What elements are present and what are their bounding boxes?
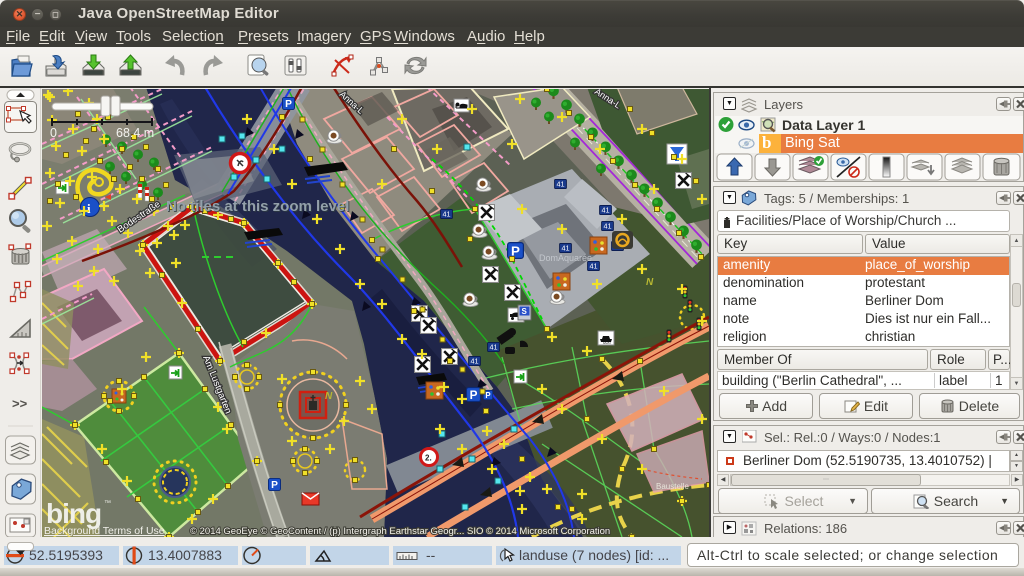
svg-text:N: N	[646, 277, 654, 288]
svg-text:>>: >>	[12, 396, 28, 411]
svg-text:2.: 2.	[425, 454, 432, 463]
svg-text:™: ™	[104, 500, 111, 507]
svg-text:68.4 m: 68.4 m	[116, 126, 154, 140]
svg-text:TAXI: TAXI	[602, 340, 611, 345]
svg-text:© 2014 GeoEye © GeoContent / (: © 2014 GeoEye © GeoContent / (p) Intergr…	[190, 526, 610, 537]
svg-text:0: 0	[50, 126, 57, 140]
svg-text:No tiles at this zoom level: No tiles at this zoom level	[166, 198, 349, 215]
svg-text:Background Terms of Use: Background Terms of Use	[44, 525, 165, 537]
svg-text:i: i	[87, 201, 91, 216]
svg-text:Baustelle: Baustelle	[656, 482, 689, 491]
svg-text:S: S	[522, 307, 528, 316]
svg-text:N: N	[325, 391, 333, 402]
svg-text:DomAquarée: DomAquarée	[539, 253, 592, 263]
